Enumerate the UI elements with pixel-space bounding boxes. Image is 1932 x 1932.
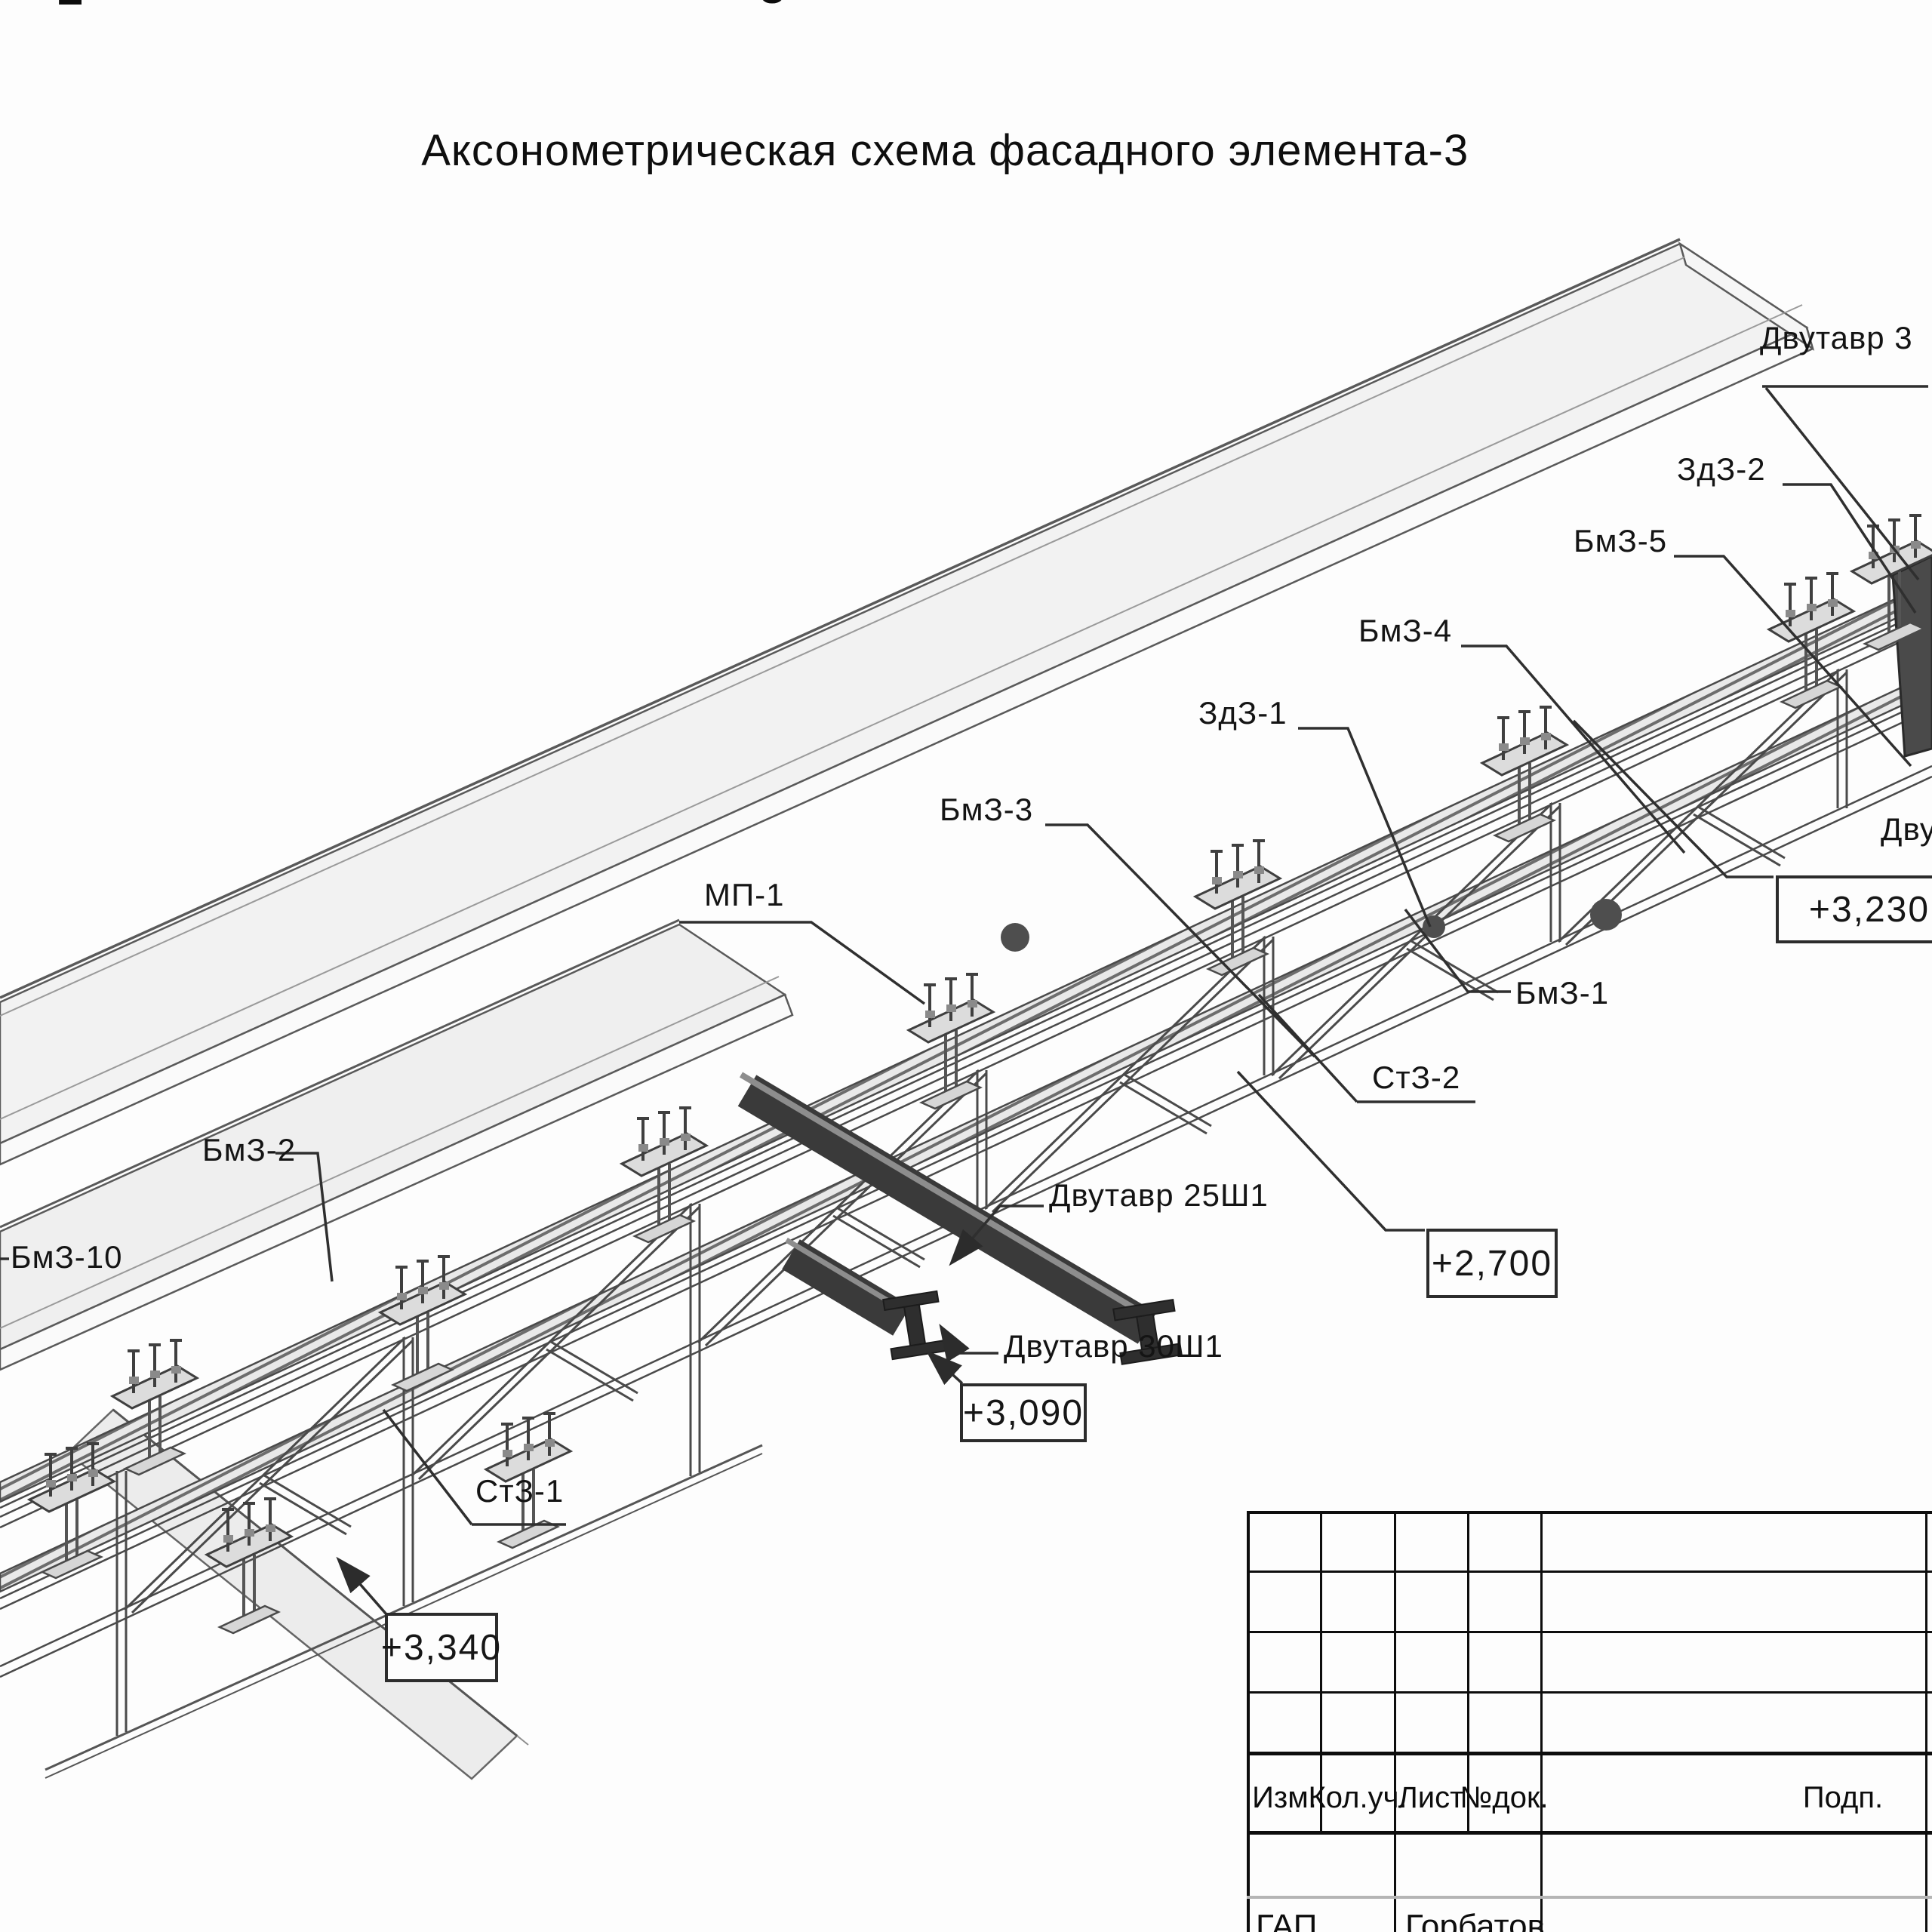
i-beam-25sh1 xyxy=(741,1075,1182,1364)
elevation-box-3090: +3,090 xyxy=(960,1383,1087,1442)
elevation-value: +3,340 xyxy=(381,1627,502,1669)
label-bm3-10: БмЗ-10 xyxy=(11,1239,123,1275)
elevation-box-3230: +3,230 xyxy=(1776,875,1932,943)
stamp-role-gap: ГАП xyxy=(1256,1908,1317,1932)
label-bm3-5: БмЗ-5 xyxy=(1574,523,1667,559)
label-bm3-4: БмЗ-4 xyxy=(1358,613,1452,649)
page-title: Аксонометрическая схема фасадного элемен… xyxy=(421,125,1469,176)
stamp-col-ndok: №док. xyxy=(1460,1781,1548,1815)
elevation-box-3340: +3,340 xyxy=(385,1613,498,1682)
label-bm3-3: БмЗ-3 xyxy=(940,792,1033,828)
title-block: Изм. Кол.уч. Лист №док. Подп. ГАП Горбат… xyxy=(1247,1511,1932,1932)
stamp-col-podp: Подп. xyxy=(1803,1781,1883,1815)
elevation-value: +3,230 xyxy=(1809,889,1930,931)
label-mp-1: МП-1 xyxy=(704,877,785,913)
label-zd3-1: ЗдЗ-1 xyxy=(1198,695,1287,731)
label-beam-25sh1: Двутавр 25Ш1 xyxy=(1049,1177,1269,1214)
stamp-col-koluch: Кол.уч. xyxy=(1308,1781,1407,1815)
stamp-col-list: Лист xyxy=(1398,1781,1464,1815)
label-st3-1: СтЗ-1 xyxy=(475,1473,564,1509)
elevation-box-2700: +2,700 xyxy=(1426,1229,1558,1298)
label-bm3-2: БмЗ-2 xyxy=(202,1132,296,1168)
connector-node xyxy=(1001,923,1029,952)
elevation-value: +2,700 xyxy=(1432,1243,1552,1284)
stamp-col-izm: Изм. xyxy=(1252,1781,1317,1815)
cad-drawing-sheet: 2 3 xyxy=(0,0,1932,1932)
facade-panel xyxy=(0,239,1813,1164)
label-beam-top-right-partial: Двутавр 3 xyxy=(1760,320,1913,356)
label-zd3-2: ЗдЗ-2 xyxy=(1677,451,1766,488)
label-dvutavr-right-partial: Дву xyxy=(1881,811,1932,848)
label-st3-2: СтЗ-2 xyxy=(1372,1060,1460,1096)
elevation-value: +3,090 xyxy=(963,1392,1084,1434)
label-bm3-1: БмЗ-1 xyxy=(1515,975,1609,1011)
label-beam-30sh1: Двутавр 30Ш1 xyxy=(1004,1328,1223,1364)
connector-node xyxy=(1590,899,1622,931)
stamp-name-gorbatov: Горбатов xyxy=(1405,1908,1545,1932)
